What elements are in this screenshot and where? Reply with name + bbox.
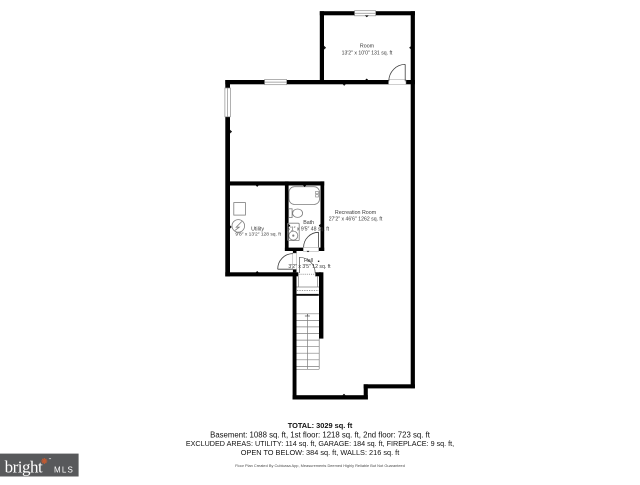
svg-text:™: ™ — [48, 457, 51, 461]
svg-text:3′2″ x 3′5″ 12 sq. ft: 3′2″ x 3′5″ 12 sq. ft — [288, 264, 331, 270]
svg-text:bright: bright — [5, 457, 43, 476]
svg-text:5′1″ x 9′5″ 48 sq. ft: 5′1″ x 9′5″ 48 sq. ft — [287, 227, 330, 233]
svg-text:Room: Room — [360, 44, 375, 50]
svg-text:Utility: Utility — [251, 226, 264, 232]
svg-text:OPEN TO BELOW: 384 sq. ft, WAL: OPEN TO BELOW: 384 sq. ft, WALLS: 216 sq… — [241, 448, 400, 457]
svg-text:MLS: MLS — [54, 465, 74, 474]
svg-text:13′2″ x 10′0″ 131 sq. ft: 13′2″ x 10′0″ 131 sq. ft — [342, 50, 393, 56]
svg-text:TOTAL: 3029 sq. ft: TOTAL: 3029 sq. ft — [288, 421, 353, 430]
svg-text:Floor Plan Created By Cubicasa: Floor Plan Created By Cubicasa App, Meas… — [235, 463, 405, 468]
svg-text:EXCLUDED AREAS: UTILITY: 114 s: EXCLUDED AREAS: UTILITY: 114 sq. ft, GAR… — [186, 439, 454, 448]
svg-text:9′8″ x 13′2″ 128 sq. ft: 9′8″ x 13′2″ 128 sq. ft — [235, 232, 281, 238]
svg-text:Recreation Room: Recreation Room — [335, 210, 377, 216]
svg-text:Bath: Bath — [303, 220, 314, 226]
svg-text:Basement: 1088 sq. ft, 1st flo: Basement: 1088 sq. ft, 1st floor: 1218 s… — [210, 430, 431, 439]
svg-text:27′2″ x 46′6″ 1262 sq. ft: 27′2″ x 46′6″ 1262 sq. ft — [329, 217, 383, 223]
